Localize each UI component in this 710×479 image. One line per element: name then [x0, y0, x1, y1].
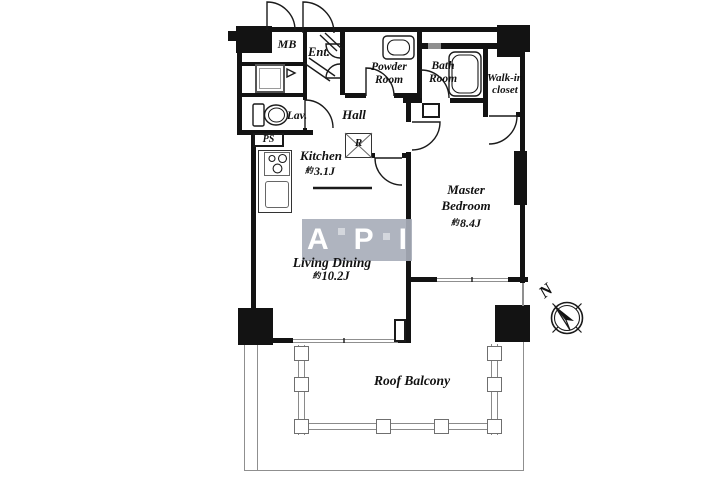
room-size-living-dining: 約10.2J [271, 269, 391, 283]
balcony-boundary [244, 470, 524, 471]
room-label-closet: Walk-in closet [474, 72, 536, 97]
burner [269, 156, 275, 162]
compass-icon [552, 303, 583, 334]
railing-post [294, 377, 309, 392]
door-arc-closet [489, 116, 517, 144]
railing-post [294, 346, 309, 361]
entry-step-line [304, 63, 330, 81]
room-label-refrigerator: R [345, 137, 372, 149]
watermark-letter: A [307, 225, 329, 255]
balcony-boundary [523, 342, 524, 471]
faucet-mark [287, 69, 295, 77]
railing-post [294, 419, 309, 434]
room-label-living-dining: Living Dining [272, 255, 392, 270]
room-label-entrance: Ent. [294, 45, 344, 59]
watermark-dot [383, 233, 390, 240]
railing [302, 423, 495, 430]
room-label-bath: Bath Room [413, 60, 473, 86]
room-label-lavatory: Lav. [277, 110, 317, 123]
burner [273, 164, 282, 173]
room-label-kitchen: Kitchen [286, 149, 356, 164]
railing-post [487, 419, 502, 434]
room-label-master-bedroom: Master Bedroom 約8.4J [416, 182, 516, 231]
railing-post [487, 346, 502, 361]
door-arc-living [375, 158, 402, 185]
washbasin [388, 40, 410, 55]
window-tick [344, 277, 472, 343]
room-label-hall: Hall [324, 108, 384, 123]
door-arc-bedroom [412, 122, 440, 150]
room-size-kitchen: 約3.1J [285, 165, 355, 178]
door-arc [303, 2, 334, 33]
railing-post [434, 419, 449, 434]
balcony-boundary [244, 345, 245, 471]
railing-post [487, 377, 502, 392]
door-arc [267, 2, 295, 30]
watermark-letter: P [354, 225, 374, 255]
toilet-tank [253, 104, 264, 126]
watermark-dot [338, 228, 345, 235]
balcony-boundary [257, 345, 258, 471]
railing-post [376, 419, 391, 434]
watermark-letter: I [399, 225, 407, 255]
room-label-roof-balcony: Roof Balcony [347, 373, 477, 388]
floor-plan: PS [0, 0, 710, 479]
